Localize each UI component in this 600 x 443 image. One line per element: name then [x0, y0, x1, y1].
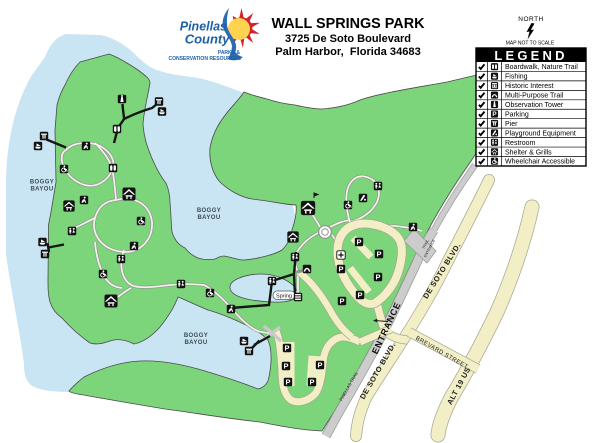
- svg-text:Multi-Purpose Trail: Multi-Purpose Trail: [505, 93, 564, 100]
- svg-text:Boardwalk, Nature Trail: Boardwalk, Nature Trail: [505, 64, 578, 71]
- svg-text:LEGEND: LEGEND: [494, 48, 567, 63]
- svg-text:CONSERVATION RESOURCES: CONSERVATION RESOURCES: [168, 56, 241, 62]
- svg-text:Playground Equipment: Playground Equipment: [505, 130, 576, 137]
- svg-text:Restroom: Restroom: [505, 140, 536, 147]
- svg-text:WALL SPRINGS PARK: WALL SPRINGS PARK: [272, 16, 426, 32]
- svg-text:BAYOU: BAYOU: [30, 187, 53, 193]
- svg-text:Palm Harbor, Florida 34683: Palm Harbor, Florida 34683: [275, 46, 421, 58]
- svg-text:Wheelchair Accessible: Wheelchair Accessible: [505, 159, 575, 166]
- svg-text:Fishing: Fishing: [505, 74, 528, 81]
- svg-text:BAYOU: BAYOU: [184, 340, 207, 346]
- svg-text:County: County: [185, 32, 231, 47]
- svg-text:Historic Interest: Historic Interest: [505, 83, 554, 90]
- svg-text:3725 De Soto Boulevard: 3725 De Soto Boulevard: [285, 33, 411, 45]
- svg-text:MAP NOT TO SCALE: MAP NOT TO SCALE: [506, 41, 555, 47]
- svg-text:NORTH: NORTH: [518, 16, 544, 23]
- svg-text:Observation Tower: Observation Tower: [505, 102, 564, 109]
- svg-text:BREVARD STREET: BREVARD STREET: [414, 336, 469, 371]
- svg-text:Pier: Pier: [505, 121, 518, 128]
- svg-text:Shelter & Grills: Shelter & Grills: [505, 149, 552, 156]
- svg-text:BOGGY: BOGGY: [197, 208, 221, 214]
- svg-text:Spring: Spring: [276, 294, 292, 300]
- svg-text:Parking: Parking: [505, 112, 529, 119]
- svg-text:BOGGY: BOGGY: [184, 333, 208, 339]
- svg-text:BAYOU: BAYOU: [197, 215, 220, 221]
- svg-text:BOGGY: BOGGY: [30, 180, 54, 186]
